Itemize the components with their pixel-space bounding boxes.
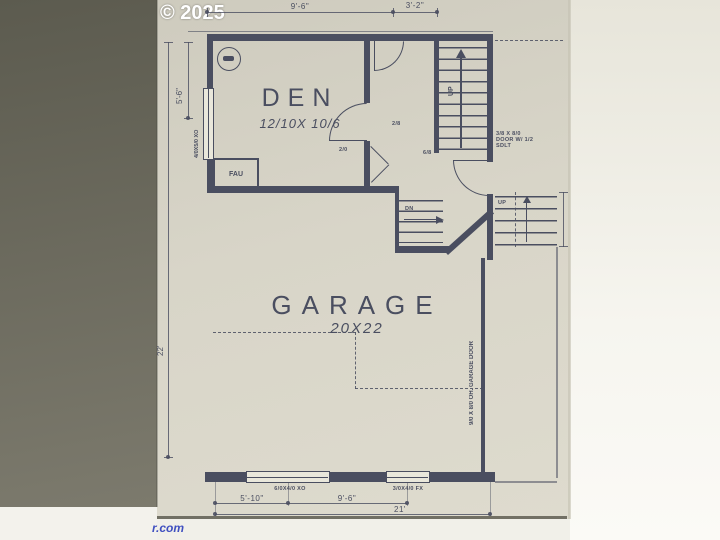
bottom-dim-dot — [286, 501, 290, 505]
top-dim-dot — [391, 10, 395, 14]
den-window-mullion — [208, 89, 209, 158]
fau-closet: FAU — [213, 158, 259, 190]
right-dim-tick — [559, 192, 568, 193]
garage-steps-arrow-line — [404, 219, 436, 220]
garage-size: 20X22 — [277, 320, 437, 337]
bottom-dim-dot — [213, 501, 217, 505]
background-right-strip — [570, 0, 720, 540]
bottom-dim-dot — [213, 512, 217, 516]
den-door-size: 2/0 — [339, 147, 348, 153]
wall-garage-right — [481, 258, 485, 478]
paper-left-seam — [156, 0, 158, 507]
bottom-dim-dot — [488, 512, 492, 516]
staircase-arrow-line — [460, 58, 462, 148]
porch-steps-label: UP — [498, 200, 506, 206]
fau-label: FAU — [215, 160, 257, 188]
dim-label-bottom-left: 5'-10" — [222, 494, 282, 503]
bottom-ext-line — [215, 482, 216, 516]
left-dim-inner-tick — [184, 42, 193, 43]
hall-door-leaf — [374, 41, 375, 71]
driveway-line-v — [556, 247, 558, 478]
roof-dashed-line — [495, 40, 563, 41]
site-watermark: r.com — [152, 521, 184, 535]
top-dim-dot — [435, 10, 439, 14]
floor-plan-photo: © 2025 r.com 9'-6" 3'-2" 5'-6" 22' 4/0X5… — [0, 0, 720, 540]
staircase-arrow-head — [456, 49, 466, 58]
left-dim-outer-tick — [164, 42, 173, 43]
copyright-watermark: © 2025 — [160, 2, 225, 25]
paper-right-seam — [568, 0, 571, 519]
bottom-window-left-mullion — [247, 477, 328, 478]
bottom-window-right — [386, 471, 430, 483]
entry-door-size: 6/8 — [423, 150, 432, 156]
garage-dashed-line-v — [355, 332, 356, 389]
garage-door-label: 9/0 X 8/0 OH. GARAGE DOOR — [469, 300, 475, 425]
wall-entry-bottom — [397, 246, 449, 253]
top-dim-line-2 — [188, 31, 493, 32]
dim-label-bottom-total: 21' — [380, 505, 420, 514]
garage-steps-arrow-head — [436, 216, 444, 224]
staircase-up-label: UP — [448, 72, 455, 96]
entry-door-leaf — [453, 160, 489, 161]
left-dim-outer — [168, 42, 169, 458]
left-dim-dot — [166, 455, 170, 459]
den-window — [203, 88, 214, 160]
garage-dashed-line-h1 — [213, 332, 356, 333]
dim-label-left-upper: 5'-6" — [175, 60, 184, 104]
bottom-window-right-mullion — [387, 477, 428, 478]
wall-top — [207, 34, 493, 41]
bottom-window-left-label: 6/0X4/0 XO — [262, 486, 318, 492]
right-dim-tick — [559, 246, 568, 247]
dim-label-top-left: 9'-6" — [270, 2, 330, 11]
background-left-strip — [0, 0, 157, 507]
entry-door-note: 3/8 X 8/0 DOOR W/ 1/2 SDLT — [496, 131, 554, 149]
porch-arrow-head — [523, 196, 531, 203]
garage-name: GARAGE — [262, 290, 452, 321]
ceiling-fixture-blob — [223, 56, 234, 61]
background-bottom-left — [0, 507, 157, 540]
dim-label-left-total: 22' — [156, 320, 165, 356]
dim-label-top-right: 3'-2" — [393, 1, 437, 10]
paper-bottom-edge — [157, 516, 567, 519]
bottom-ext-line — [490, 482, 491, 516]
bottom-dim-line-2 — [215, 514, 490, 515]
garage-steps-label: DN — [405, 206, 414, 212]
porch-dashed-line — [515, 192, 516, 247]
ceiling-fixture-icon — [217, 47, 241, 71]
left-dim-dot — [186, 116, 190, 120]
entry-door-note-line: SDLT — [496, 143, 554, 149]
left-dim-inner — [188, 42, 189, 118]
staircase — [439, 47, 487, 150]
top-dim-dot — [205, 10, 209, 14]
top-dim-line — [207, 12, 437, 13]
wall-right-lower — [487, 194, 493, 260]
garage-dashed-line-h2 — [355, 388, 483, 389]
den-window-label: 4/0X5/0 XO — [194, 92, 200, 158]
hall-door-size: 2/8 — [392, 121, 401, 127]
bottom-dim-line-1 — [215, 503, 407, 504]
den-door-leaf — [329, 140, 367, 141]
wall-den-right-lower — [364, 141, 370, 193]
right-dim-line — [563, 192, 564, 247]
dim-label-bottom-mid: 9'-6" — [317, 494, 377, 503]
porch-arrow-line — [526, 202, 527, 242]
driveway-line-h — [495, 481, 557, 483]
wall-right-upper — [487, 34, 493, 162]
bottom-window-right-label: 3/0X4/0 FX — [380, 486, 436, 492]
background-bottom-strip — [157, 519, 570, 540]
